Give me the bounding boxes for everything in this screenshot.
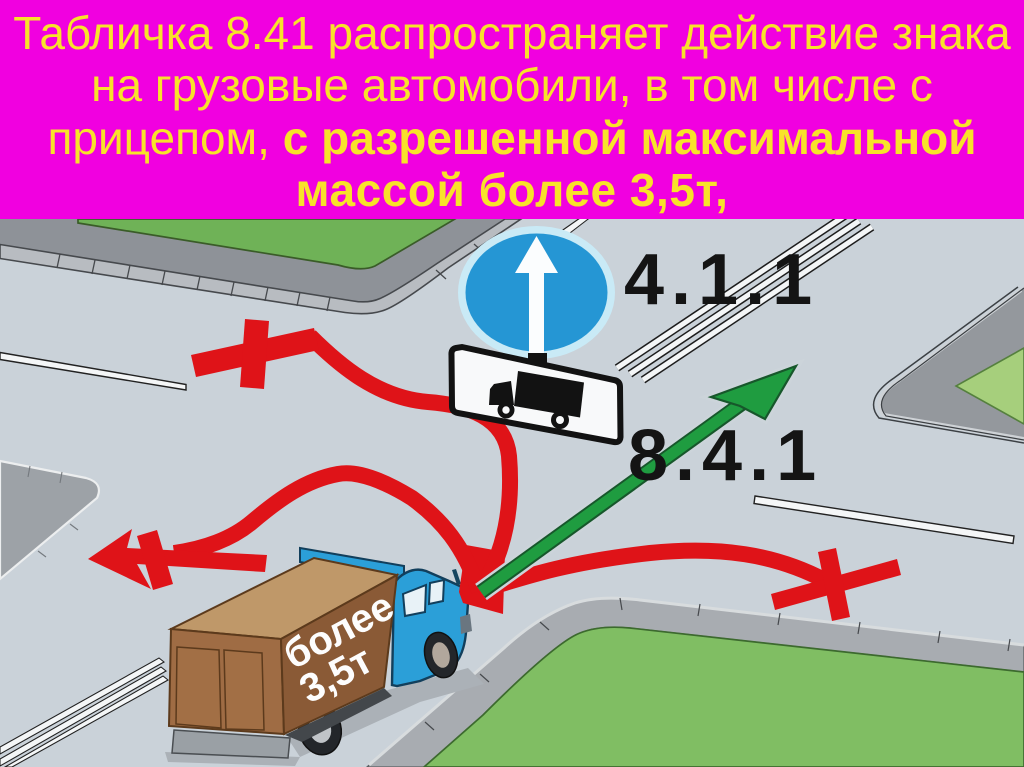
svg-text:8.4.1: 8.4.1 <box>628 416 823 496</box>
svg-text:4.1.1: 4.1.1 <box>624 240 819 320</box>
